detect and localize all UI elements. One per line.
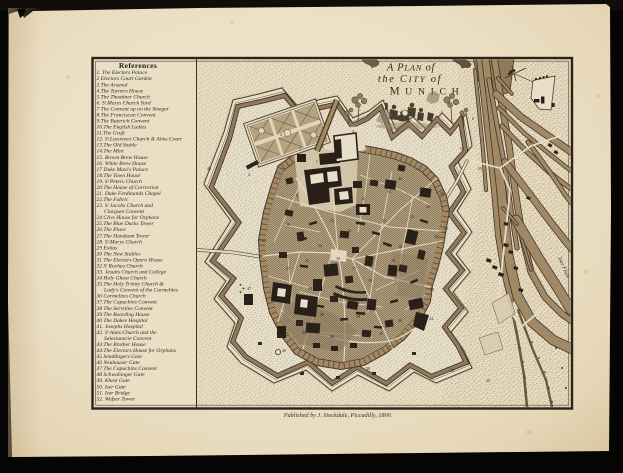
svg-text:24: 24 xyxy=(429,316,433,321)
svg-text:14.The Mint: 14.The Mint xyxy=(97,148,125,155)
svg-text:45: 45 xyxy=(450,368,454,373)
svg-text:39: 39 xyxy=(388,344,392,349)
svg-text:8: 8 xyxy=(322,182,324,187)
svg-text:22: 22 xyxy=(382,218,386,223)
svg-text:7: 7 xyxy=(307,172,309,177)
svg-text:48: 48 xyxy=(207,166,211,171)
svg-text:42: 42 xyxy=(434,234,438,239)
svg-text:46 Neuhauser Gate: 46 Neuhauser Gate xyxy=(97,359,141,366)
svg-text:36: 36 xyxy=(398,318,402,323)
svg-text:32: 32 xyxy=(302,330,306,335)
svg-text:2: 2 xyxy=(280,132,282,137)
svg-text:49. Khest Gate: 49. Khest Gate xyxy=(97,377,131,384)
svg-text:17 Duke Maxi's Palace: 17 Duke Maxi's Palace xyxy=(97,167,149,173)
svg-text:44.The Electors House for Orph: 44.The Electors House for Orphans xyxy=(97,347,176,354)
svg-text:Lady's Convent of the Carmelit: Lady's Convent of the Carmelites xyxy=(103,287,178,294)
svg-text:28. Sᵗ.Marys Church: 28. Sᵗ.Marys Church xyxy=(97,239,143,245)
svg-text:33. Jesuits Church and College: 33. Jesuits Church and College xyxy=(96,270,167,276)
svg-text:Clargsen Convent: Clargsen Convent xyxy=(104,209,144,215)
svg-text:43.The Brother House: 43.The Brother House xyxy=(97,341,147,348)
svg-text:41: 41 xyxy=(420,256,424,261)
svg-text:52: 52 xyxy=(460,146,464,151)
svg-text:20: 20 xyxy=(391,258,395,263)
svg-text:12: 12 xyxy=(361,196,365,201)
svg-text:40: 40 xyxy=(430,287,434,292)
svg-text:40 The Dukes Hospital: 40 The Dukes Hospital xyxy=(97,317,148,324)
svg-text:References: References xyxy=(119,61,157,70)
svg-text:46: 46 xyxy=(440,191,444,196)
svg-text:38: 38 xyxy=(352,344,356,349)
svg-text:Published by J. Stockdale, Pic: Published by J. Stockdale, Piccadilly, 1… xyxy=(283,412,392,419)
svg-text:26: 26 xyxy=(320,312,324,317)
svg-text:43: 43 xyxy=(426,204,430,209)
svg-text:10: 10 xyxy=(286,222,290,227)
svg-text:33: 33 xyxy=(308,286,312,291)
svg-text:27: 27 xyxy=(286,266,290,271)
svg-text:45: 45 xyxy=(282,348,286,353)
svg-text:7 The Convent up on the Steege: 7 The Convent up on the Steeger xyxy=(97,106,170,112)
svg-text:25: 25 xyxy=(486,378,490,383)
svg-text:3: 3 xyxy=(352,129,354,134)
svg-text:22.The Fabric: 22.The Fabric xyxy=(97,197,129,203)
svg-text:26.The Place: 26.The Place xyxy=(97,227,127,233)
svg-text:9: 9 xyxy=(296,193,298,198)
svg-text:52. Wafser Tower: 52. Wafser Tower xyxy=(97,395,136,402)
svg-text:34: 34 xyxy=(372,305,376,310)
svg-text:45 Sendlingers Gate: 45 Sendlingers Gate xyxy=(97,353,143,360)
svg-text:16: 16 xyxy=(398,244,402,249)
svg-text:51: 51 xyxy=(478,166,482,171)
svg-text:34 Holy Ghost Church: 34 Holy Ghost Church xyxy=(96,275,147,282)
svg-text:19: 19 xyxy=(336,256,340,261)
svg-text:42. Sᵗ Anns Church and the: 42. Sᵗ Anns Church and the xyxy=(97,329,158,336)
svg-text:48 Schwabinger Gate: 48 Schwabinger Gate xyxy=(97,371,146,378)
svg-text:51. Iser Bridge: 51. Iser Bridge xyxy=(97,390,131,396)
svg-text:11.The Gruft: 11.The Gruft xyxy=(97,130,126,137)
svg-text:35: 35 xyxy=(379,331,383,336)
svg-text:30: 30 xyxy=(330,334,334,339)
svg-text:17: 17 xyxy=(352,266,356,271)
svg-text:1: 1 xyxy=(316,159,318,164)
svg-text:31 The Electors Opera House: 31 The Electors Opera House xyxy=(96,257,164,263)
svg-text:50: 50 xyxy=(444,226,448,231)
svg-text:21: 21 xyxy=(410,214,414,219)
svg-text:23: 23 xyxy=(296,304,300,309)
svg-text:20.The House of Correction: 20.The House of Correction xyxy=(97,184,159,191)
svg-text:37.The Capuchins Convent: 37.The Capuchins Convent xyxy=(96,300,158,306)
svg-text:5: 5 xyxy=(299,146,301,151)
svg-text:47 The Capuchins Convent: 47 The Capuchins Convent xyxy=(97,365,158,372)
svg-text:6: 6 xyxy=(472,116,474,121)
svg-text:2 Electors Court Garden: 2 Electors Court Garden xyxy=(97,76,152,82)
svg-text:19. Sᵗ Peters Church: 19. Sᵗ Peters Church xyxy=(97,179,143,185)
svg-text:41. Josephs Hospital: 41. Josephs Hospital xyxy=(97,323,144,330)
svg-text:14: 14 xyxy=(318,243,322,248)
svg-text:4.The Turners House: 4.The Turners House xyxy=(97,87,144,94)
svg-text:15: 15 xyxy=(305,258,309,263)
svg-text:28: 28 xyxy=(342,288,346,293)
svg-text:9.The Buterich Convent: 9.The Buterich Convent xyxy=(97,119,150,125)
svg-text:50: 50 xyxy=(366,366,370,371)
svg-text:31: 31 xyxy=(387,189,391,194)
svg-text:47: 47 xyxy=(247,286,251,291)
svg-text:12. Sᵗ.Lawrence Church & Alms: 12. Sᵗ.Lawrence Church & Alms Court xyxy=(97,137,183,143)
svg-text:44: 44 xyxy=(398,176,402,181)
svg-text:13: 13 xyxy=(347,228,351,233)
svg-text:29: 29 xyxy=(356,314,360,319)
svg-text:18: 18 xyxy=(368,278,372,283)
svg-text:37: 37 xyxy=(414,298,418,303)
svg-text:49: 49 xyxy=(262,238,266,243)
svg-text:4: 4 xyxy=(248,172,250,177)
svg-text:11: 11 xyxy=(330,218,334,223)
svg-text:24 Clivs House for Orphans: 24 Clivs House for Orphans xyxy=(97,214,160,221)
